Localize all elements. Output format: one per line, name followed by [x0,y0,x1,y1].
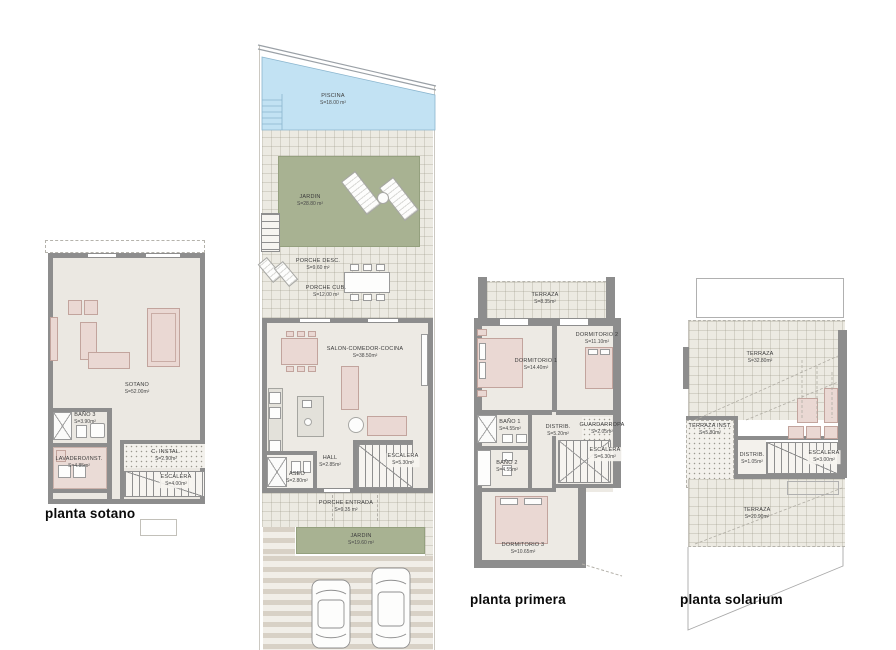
porch-chair [363,264,372,271]
boundary-dash [377,495,378,521]
room-name: TERRAZA [746,351,773,358]
sofa-furniture [88,352,130,369]
room-name: HALL [323,455,338,462]
aseo-partition [313,451,317,493]
room-name: PORCHE ENTRADA [319,500,373,507]
sofa-furniture [367,416,407,436]
sotano-window [88,253,116,258]
pillow [600,349,610,355]
primera-partition [552,484,613,488]
pillow [588,349,598,355]
sotano-roof-overhang-outline [45,240,205,253]
room-label-escalera-primera: ESCALERA S=6.30m² [589,447,622,461]
room-area: S=3.90m² [74,419,96,426]
pillow [479,343,486,360]
terrace-door-opening [500,318,528,326]
room-label-aseo: ASEO S=2.80m² [286,471,308,485]
porch-chair [376,264,385,271]
room-area: S=38.50m² [353,353,378,360]
room-label-terraza-inst: TERRAZA INST. S=5.80m² [689,423,732,437]
room-name: DORMITORIO 3 [502,542,545,549]
room-label-sotano: SOTANO S=52.00m² [125,382,150,396]
sotano-wall-bottom [48,499,205,504]
room-name: PISCINA [321,93,344,100]
room-label-distrib-solarium: DISTRIB. S=1.05m² [740,452,765,466]
room-label-hall: HALL S=2.85m² [319,455,341,469]
room-area: S=14.40m² [524,365,549,372]
room-name: LAVADERO/INST. [56,456,103,463]
sotano-window [146,253,180,258]
room-label-c-instal: C. INSTAL. S=2.90m² [151,449,180,463]
room-label-jardin-front: JARDIN S=19.60 m² [348,533,374,547]
nightstand [477,390,487,397]
room-name: SOTANO [125,382,149,389]
shower-fixture [267,457,287,487]
garden-side-stairs [261,213,280,252]
shower-fixture [53,412,72,440]
primera-wall-top [474,318,621,326]
room-area: S=5.30m² [392,460,414,467]
room-name: TERRAZA [743,507,770,514]
parked-cars-drawing [306,550,436,650]
room-label-escalera-sotano: ESCALERA S=4.00m² [160,474,193,488]
room-label-dormitorio3: DORMITORIO 3 S=10.65m² [502,542,545,556]
room-name: GUARDARROPA [580,422,625,429]
room-label-distrib-primera: DISTRIB. S=5.20m² [546,424,571,438]
room-name: ESCALERA [161,474,192,481]
room-label-dormitorio2: DORMITORIO 2 S=11.10m² [576,332,619,346]
primera-terrace-wall-right [606,277,615,320]
sotano-partition [48,489,112,493]
room-area: S=28.80 m² [297,201,323,208]
room-label-dormitorio1: DORMITORIO 1 S=14.40m² [515,358,558,372]
pool-drawing [258,38,436,133]
room-name: PORCHE CUB. [306,285,346,292]
room-label-terraza-lower: TERRAZA S=20.90m² [743,507,770,521]
room-label-escalera-baja: ESCALERA S=5.30m² [387,453,420,467]
hob-fixture [304,418,312,426]
side-table [377,192,389,204]
porch-chair [376,294,385,301]
sotano-exterior-stair-outline [140,519,177,536]
room-area: S=52.00m² [125,389,150,396]
armchair-furniture [68,300,82,315]
room-area: S=20.90m² [745,514,770,521]
dining-table-furniture [281,338,318,365]
patio-door-opening [368,318,398,323]
house-wall-top [262,318,433,323]
room-name: SALON-COMEDOR-COCINA [327,346,403,353]
room-area: S=4.00m² [165,481,187,488]
primera-boundary-dash-drawing [578,556,624,580]
round-table-furniture [348,417,364,433]
room-label-terraza-primera: TERRAZA S=8.35m² [531,292,558,306]
armchair-furniture [84,300,98,315]
room-name: C. INSTAL. [151,449,180,456]
room-name: BAÑO 1 [499,419,520,426]
patio-door-opening [300,318,330,323]
room-area: S=4.55m² [499,426,521,433]
room-area: S=8.35m² [534,299,556,306]
primera-partition [528,415,532,488]
room-area: S=4.55m² [496,467,518,474]
room-name: DISTRIB. [740,452,765,459]
room-area: S=5.20m² [547,431,569,438]
room-label-piscina: PISCINA S=18.00 m² [320,93,346,107]
room-name: DORMITORIO 1 [515,358,558,365]
room-name: TERRAZA INST. [689,423,732,430]
primera-partition [482,488,556,492]
room-label-guardarropa: GUARDARROPA S=2.05m² [580,422,625,436]
solarium-pergola-outline [696,278,844,318]
kitchen-appliance [269,407,281,419]
primera-partition [556,410,613,415]
terrace-door-opening [560,318,588,326]
room-name: ESCALERA [809,450,840,457]
room-label-porche-entrada: PORCHE ENTRADA S=9.35 m² [319,500,373,514]
tv-unit-furniture [421,334,428,386]
sofa-furniture [341,366,359,410]
floorplan-sheet: SOTANO S=52.00m² BAÑO 3 S=3.90m² LAVADER… [0,0,896,650]
primera-partition [552,436,556,488]
porch-table-furniture [344,272,390,293]
room-area: S=11.10m² [585,339,609,346]
room-area: S=9.60 m² [306,265,329,272]
room-area: S=10.65m² [511,549,536,556]
room-area: S=6.30m² [594,454,616,461]
room-area: S=2.80m² [286,478,308,485]
room-label-terraza-solarium: TERRAZA S=32.80m² [746,351,773,365]
room-label-salon: SALON-COMEDOR-COCINA S=38.50m² [327,346,403,360]
shower-fixture [477,415,497,443]
room-area: S=2.85m² [319,462,341,469]
room-label-lavadero: LAVADERO/INST. S=4.85m² [56,456,103,470]
plot-boundary-left [259,45,260,650]
bathtub-fixture [477,450,491,486]
room-label-escalera-solarium: ESCALERA S=3.00m² [808,450,841,464]
plan-title-sotano: planta sotano [45,506,135,521]
dining-chair [286,366,294,372]
kitchen-sink-fixture [302,400,312,408]
dining-chair [308,366,316,372]
porch-chair [363,294,372,301]
room-label-bano3: BAÑO 3 S=3.90m² [74,412,96,426]
room-name: JARDIN [350,533,371,540]
room-name: ASEO [289,471,305,478]
room-area: S=12.00 m² [313,292,339,299]
sideboard-furniture [50,317,58,361]
room-name: BAÑO 2 [496,460,517,467]
open-terrace-outline [688,547,843,630]
plan-title-solarium: planta solarium [680,592,783,607]
room-label-bano2: BAÑO 2 S=4.55m² [496,460,518,474]
room-area: S=18.00 m² [320,100,346,107]
kitchen-appliance [269,392,281,404]
dining-chair [297,331,305,337]
room-area: S=2.90m² [155,456,177,463]
room-name: BAÑO 3 [74,412,95,419]
plan-title-primera: planta primera [470,592,566,607]
dining-chair [286,331,294,337]
room-area: S=9.35 m² [334,507,357,514]
room-area: S=2.05m² [591,429,613,436]
room-area: S=3.00m² [813,457,835,464]
porch-chair [350,264,359,271]
room-label-porche-desc: PORCHE DESC. S=9.60 m² [296,258,340,272]
room-label-jardin: JARDIN S=28.80 m² [297,194,323,208]
primera-terrace-wall-left [478,277,487,320]
room-area: S=1.05m² [741,459,763,466]
room-area: S=32.80m² [748,358,773,365]
pillow [500,498,518,505]
sotano-wall-top [48,253,205,258]
room-name: JARDIN [299,194,320,201]
pillow [479,362,486,379]
room-area: S=5.80m² [699,430,721,437]
toilet-fixture [76,425,87,438]
room-name: ESCALERA [388,453,419,460]
room-label-bano1: BAÑO 1 S=4.55m² [499,419,521,433]
sink-fixture [516,434,527,443]
sink-fixture [502,434,513,443]
room-label-porche-cub: PORCHE CUB. S=12.00 m² [306,285,346,299]
room-name: DISTRIB. [546,424,571,431]
room-name: ESCALERA [590,447,621,454]
primera-wall-bottom [474,560,586,568]
room-area: S=19.60 m² [348,540,374,547]
billiard-table-inner-line [151,313,176,362]
nightstand [477,329,487,336]
room-name: DORMITORIO 2 [576,332,619,339]
dining-chair [308,331,316,337]
porch-chair [350,294,359,301]
room-name: PORCHE DESC. [296,258,340,265]
pillow [524,498,542,505]
room-area: S=4.85m² [68,463,90,470]
dining-chair [297,366,305,372]
house-wall-right [428,318,433,493]
room-name: TERRAZA [531,292,558,299]
